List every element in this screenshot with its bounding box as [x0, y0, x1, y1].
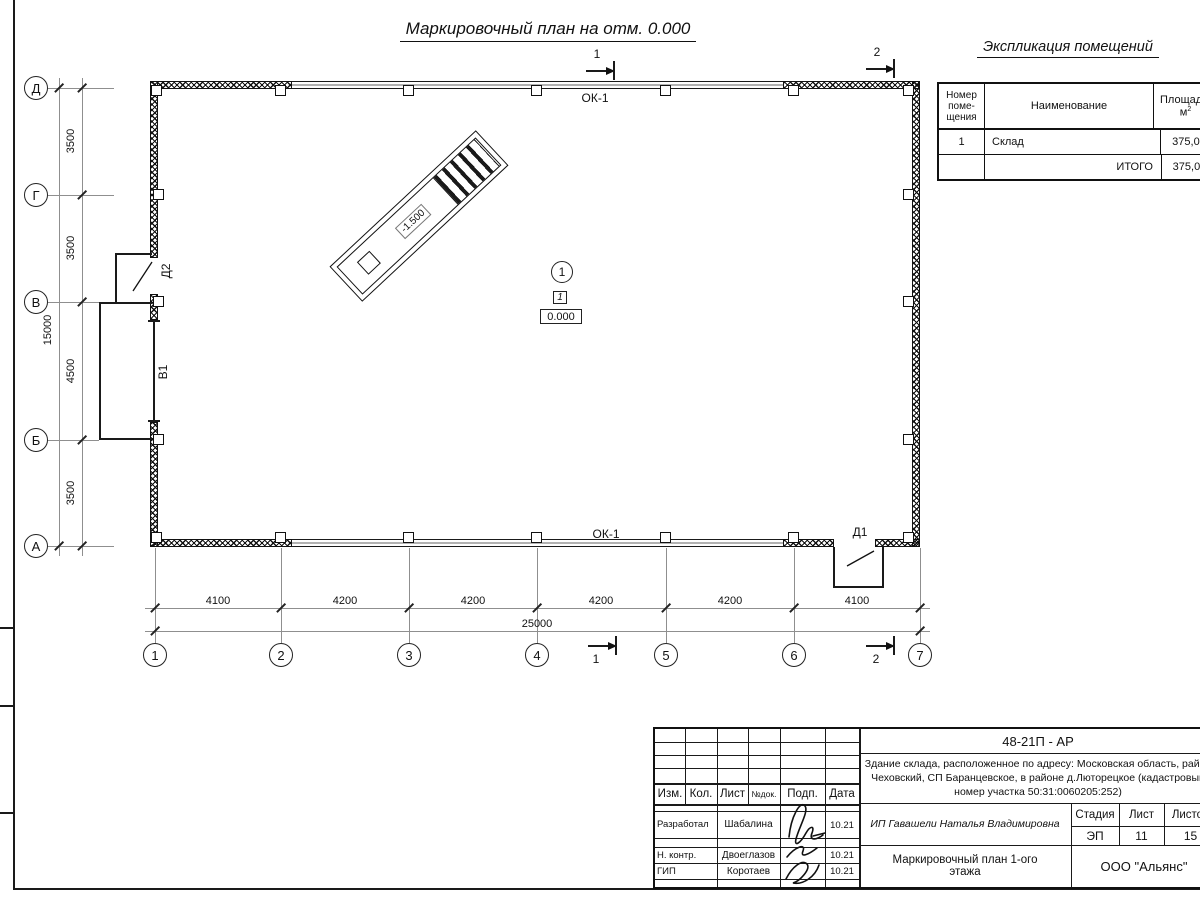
tb-sheet-label: Лист	[1119, 803, 1164, 826]
tb-line	[655, 879, 859, 880]
tb-sheet-value: 11	[1119, 826, 1164, 845]
column	[788, 532, 799, 543]
explication-table: Номер поме- щения Наименование Площадь, …	[937, 82, 1200, 181]
platform-top	[99, 302, 152, 304]
tb-line	[655, 742, 859, 743]
wall-top-right	[783, 81, 919, 89]
tb-role-gip: ГИП	[657, 863, 717, 879]
tb-col-data: Дата	[825, 783, 859, 804]
column	[903, 296, 914, 307]
tb-col-list: Лист	[717, 783, 748, 804]
section-2-arrow-bottom	[866, 645, 886, 647]
tb-col-izm: Изм.	[655, 783, 685, 804]
tb-line	[655, 838, 859, 839]
column	[153, 189, 164, 200]
gate-v1-line	[153, 322, 155, 420]
dim-text: 3500	[65, 481, 77, 505]
wall-bottom-left	[150, 539, 292, 547]
tb-drawing-name: Маркировочный план 1-ого этажа	[859, 845, 1071, 887]
dim-text-total: 15000	[42, 315, 54, 346]
dim-text: 3500	[65, 236, 77, 260]
axis-bubble-3: 3	[397, 643, 421, 667]
column	[275, 85, 286, 96]
column	[153, 296, 164, 307]
axis-bubble-7: 7	[908, 643, 932, 667]
tb-stage-value: ЭП	[1071, 826, 1119, 845]
axis-bubble-a: А	[24, 534, 48, 558]
column	[660, 532, 671, 543]
room-ref-square: 1	[553, 291, 567, 304]
tb-name-gip: Коротаев	[717, 863, 780, 879]
tb-col-kol: Кол.	[685, 783, 717, 804]
d1-porch-left	[833, 547, 835, 588]
tb-project-code: 48-21П - АР	[859, 729, 1200, 753]
dim-line-left-segments	[82, 78, 83, 556]
tb-project-description: Здание склада, расположенное по адресу: …	[859, 753, 1200, 803]
dim-text: 4200	[718, 595, 742, 607]
column	[151, 532, 162, 543]
window-label-bottom: ОК-1	[593, 527, 620, 541]
tb-date-ncontrol: 10.21	[825, 847, 859, 863]
section-2-number-top: 2	[874, 45, 881, 59]
room-area-cell: 375,00	[1161, 130, 1200, 154]
room-number-cell: 1	[939, 130, 985, 154]
column	[903, 189, 914, 200]
axis-bubble-2: 2	[269, 643, 293, 667]
loading-ramp: -1.500	[329, 130, 508, 302]
column	[903, 434, 914, 445]
tb-line	[655, 755, 859, 756]
dim-text: 4500	[65, 359, 77, 383]
dim-text: 4200	[589, 595, 613, 607]
dim-text: 4100	[845, 595, 869, 607]
column	[403, 532, 414, 543]
explication-col-name: Наименование	[985, 84, 1154, 128]
tb-client: ИП Гавашели Наталья Владимировна	[859, 803, 1071, 845]
explication-title: Экспликация помещений	[977, 39, 1159, 58]
section-1-number-bottom: 1	[593, 652, 600, 666]
dim-text: 4200	[461, 595, 485, 607]
tb-date-developer: 10.21	[825, 815, 859, 835]
tb-line	[655, 768, 859, 769]
total-area-cell: 375,00	[1162, 155, 1200, 179]
column	[151, 85, 162, 96]
section-1-arrow-bottom	[588, 645, 608, 647]
d1-porch-right	[882, 547, 884, 588]
platform-bottom	[99, 438, 152, 440]
drawing-sheet: { "title": "Маркировочный план на отм. 0…	[0, 0, 1200, 900]
dim-text: 4200	[333, 595, 357, 607]
axis-bubble-v: В	[24, 290, 48, 314]
room-level-box: 0.000	[540, 309, 582, 324]
dim-line-bottom-total	[145, 631, 930, 632]
column	[275, 532, 286, 543]
section-1-tick-bottom	[615, 636, 617, 655]
section-1-number-top: 1	[594, 47, 601, 61]
tb-role-ncontrol: Н. контр.	[657, 847, 717, 863]
tb-sheets-label: Листов	[1164, 803, 1200, 826]
axis-bubble-1: 1	[143, 643, 167, 667]
axis-bubble-6: 6	[782, 643, 806, 667]
signatures	[780, 797, 826, 889]
axis-bubble-b: Б	[24, 428, 48, 452]
explication-row-1: 1 Склад 375,00	[939, 130, 1200, 155]
door-d1-label: Д1	[853, 525, 868, 539]
section-2-tick-top	[893, 59, 895, 78]
section-1-tick-top	[613, 61, 615, 80]
plan-title: Маркировочный план на отм. 0.000	[400, 19, 697, 42]
explication-col-area: Площадь, м2	[1154, 84, 1200, 128]
axis-line	[409, 548, 410, 643]
axis-line	[281, 548, 282, 643]
section-2-arrow-top	[866, 68, 886, 70]
explication-title-wrap: Экспликация помещений	[930, 39, 1200, 58]
column	[403, 85, 414, 96]
wall-left-upper	[150, 81, 158, 258]
door-d2-label: Д2	[159, 264, 173, 279]
tb-company: ООО "Альянс"	[1071, 845, 1200, 887]
tb-name-developer: Шабалина	[717, 811, 780, 838]
frame-mark-1	[0, 627, 14, 629]
column	[903, 85, 914, 96]
column	[531, 532, 542, 543]
dim-text: 4100	[206, 595, 230, 607]
dim-text-total: 25000	[522, 618, 553, 630]
axis-bubble-g: Г	[24, 183, 48, 207]
axis-bubble-4: 4	[525, 643, 549, 667]
tb-sheets-value: 15	[1164, 826, 1200, 845]
title-block: Изм. Кол. Лист №док. Подп. Дата Разработ…	[653, 727, 1200, 889]
gate-v1-cap-top	[148, 320, 160, 322]
d2-porch-top	[115, 253, 152, 255]
explication-header-row: Номер поме- щения Наименование Площадь, …	[939, 84, 1200, 130]
explication-col-number: Номер поме- щения	[939, 84, 985, 128]
d1-porch-bottom	[833, 586, 884, 588]
explication-total-row: ИТОГО 375,00	[939, 155, 1200, 179]
tb-role-developer: Разработал	[657, 811, 717, 838]
d2-porch-left	[115, 253, 117, 302]
tb-name-ncontrol: Двоеглазов	[717, 847, 780, 863]
column	[531, 85, 542, 96]
total-label-cell: ИТОГО	[985, 155, 1162, 179]
axis-line	[48, 440, 99, 441]
frame-mark-2	[0, 705, 14, 707]
axis-line	[48, 302, 99, 303]
wall-top-left	[150, 81, 292, 89]
column	[788, 85, 799, 96]
wall-right	[912, 81, 920, 547]
gate-v1-label: В1	[156, 365, 170, 380]
section-2-number-bottom: 2	[873, 652, 880, 666]
plan-title-wrap: Маркировочный план на отм. 0.000	[155, 19, 941, 42]
gate-v1-cap-bottom	[148, 420, 160, 422]
axis-line	[794, 548, 795, 643]
dim-line-left-total	[59, 78, 60, 556]
tb-line	[655, 804, 859, 806]
dim-text: 3500	[65, 129, 77, 153]
section-1-arrow-top	[586, 70, 606, 72]
room-name-cell: Склад	[985, 130, 1161, 154]
column	[153, 434, 164, 445]
tb-col-ndok: №док.	[748, 783, 780, 804]
tb-stage-label: Стадия	[1071, 803, 1119, 826]
column	[660, 85, 671, 96]
axis-line	[666, 548, 667, 643]
axis-bubble-5: 5	[654, 643, 678, 667]
frame-left-line	[13, 0, 15, 889]
axis-bubble-d: Д	[24, 76, 48, 100]
tb-date-gip: 10.21	[825, 863, 859, 879]
column	[903, 532, 914, 543]
platform-left	[99, 302, 101, 440]
room-number-circle: 1	[551, 261, 573, 283]
section-2-tick-bottom	[893, 636, 895, 655]
total-empty-cell	[939, 155, 985, 179]
frame-mark-3	[0, 812, 14, 814]
window-label-top: ОК-1	[582, 91, 609, 105]
